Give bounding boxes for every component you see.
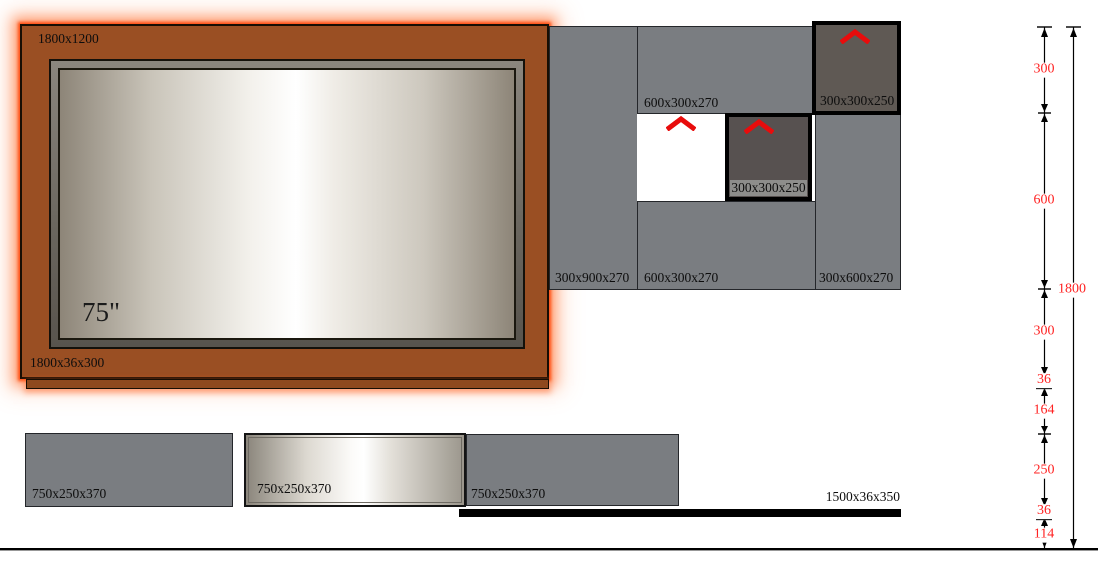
lower-cabinet-left[interactable]: 750x250x370: [25, 433, 233, 507]
cabinet-right-tall-label: 300x600x270: [819, 271, 893, 286]
lower-cabinet-middle-label: 750x250x370: [257, 482, 331, 497]
dim-value-36-lower: 36: [1036, 504, 1052, 520]
dim-value-164: 164: [1033, 404, 1056, 419]
dim-value-300-top: 300: [1033, 63, 1056, 78]
tv-back-panel[interactable]: 1800x1200 1800x36x300 75": [20, 24, 549, 379]
cabinet-top-panel[interactable]: 600x300x270: [637, 26, 816, 114]
dim-value-114: 114: [1033, 528, 1055, 543]
drawing-canvas: 1800x1200 1800x36x300 75" 300x900x270 30…: [0, 0, 1098, 561]
tv-frame[interactable]: 75": [49, 59, 525, 349]
lower-cabinet-right[interactable]: 750x250x370: [466, 434, 679, 506]
lower-shelf-label: 1500x36x350: [780, 490, 900, 505]
flap-door-box-middle-label: 300x300x250: [730, 180, 807, 196]
dim-value-600: 600: [1033, 194, 1056, 209]
tv-panel-bottom-shelf[interactable]: [26, 379, 549, 389]
dim-value-250: 250: [1033, 464, 1056, 479]
tv-size-label: 75": [82, 297, 120, 328]
shelf-size-label: 1800x36x300: [30, 356, 104, 371]
cabinet-left-tall-panel[interactable]: 300x900x270: [549, 26, 638, 290]
flap-door-box-top-label: 300x300x250: [820, 94, 894, 109]
lower-cabinet-left-label: 750x250x370: [32, 487, 106, 502]
dim-value-300-mid: 300: [1033, 325, 1056, 340]
cabinet-left-tall-label: 300x900x270: [555, 271, 629, 286]
dim-value-total-1800: 1800: [1057, 283, 1087, 298]
back-panel-size-label: 1800x1200: [38, 32, 99, 47]
cabinet-bottom-panel[interactable]: 600x300x270: [637, 201, 816, 290]
dim-value-36-upper: 36: [1036, 373, 1052, 389]
lower-cabinet-middle[interactable]: 750x250x370: [244, 433, 466, 507]
flap-up-arrow-icon: [744, 119, 774, 134]
lower-shelf-bar[interactable]: [459, 509, 901, 517]
lower-cabinet-right-label: 750x250x370: [471, 487, 545, 502]
flap-up-arrow-icon: [666, 116, 696, 131]
tv-screen: 75": [58, 68, 516, 340]
flap-up-arrow-icon: [840, 29, 870, 44]
cabinet-top-label: 600x300x270: [644, 96, 718, 111]
cabinet-bottom-label: 600x300x270: [644, 271, 718, 286]
